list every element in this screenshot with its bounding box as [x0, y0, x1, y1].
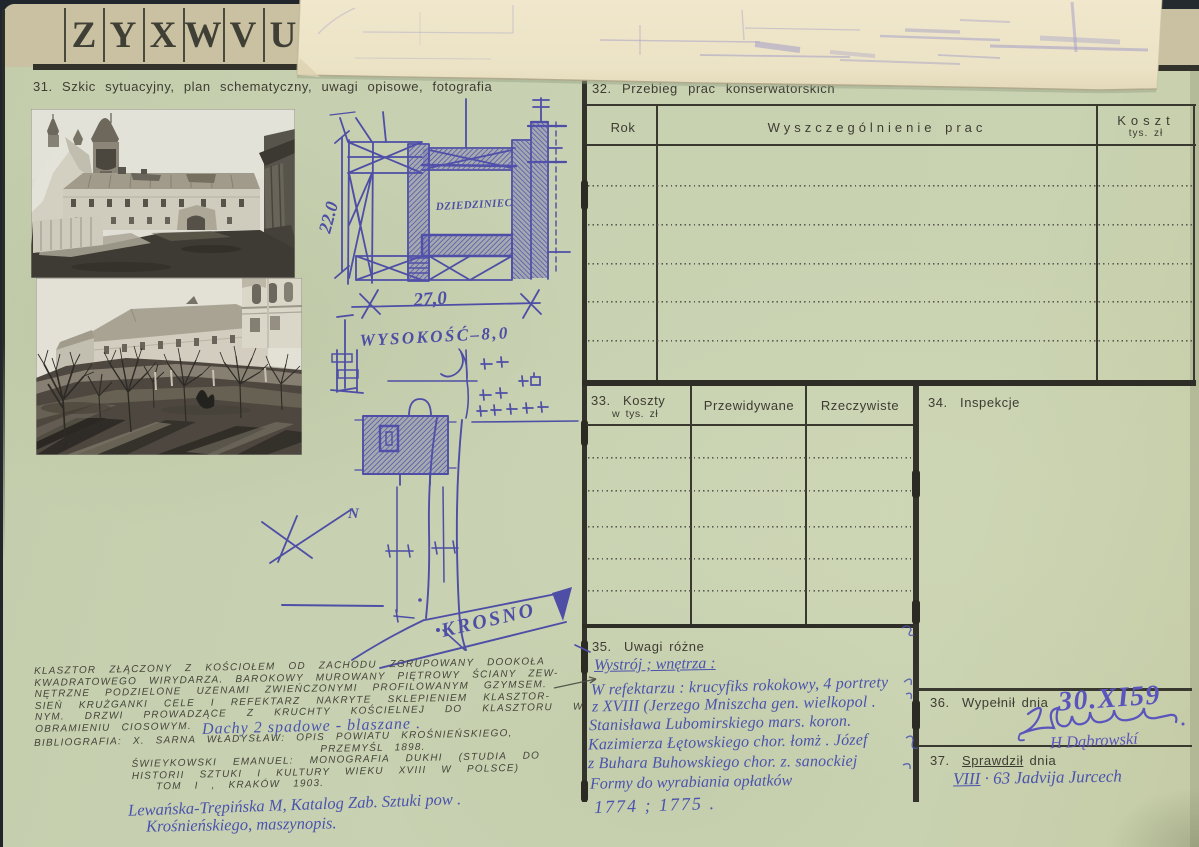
svg-text:KROSNO: KROSNO: [438, 599, 538, 642]
svg-text:WYSOKOŚĆ–8,0: WYSOKOŚĆ–8,0: [359, 323, 510, 350]
svg-text:22.0: 22.0: [314, 199, 342, 236]
svg-text:27,0: 27,0: [412, 288, 448, 311]
svg-text:N: N: [347, 506, 360, 522]
svg-text:DZIEDZINIEC: DZIEDZINIEC: [435, 197, 513, 213]
